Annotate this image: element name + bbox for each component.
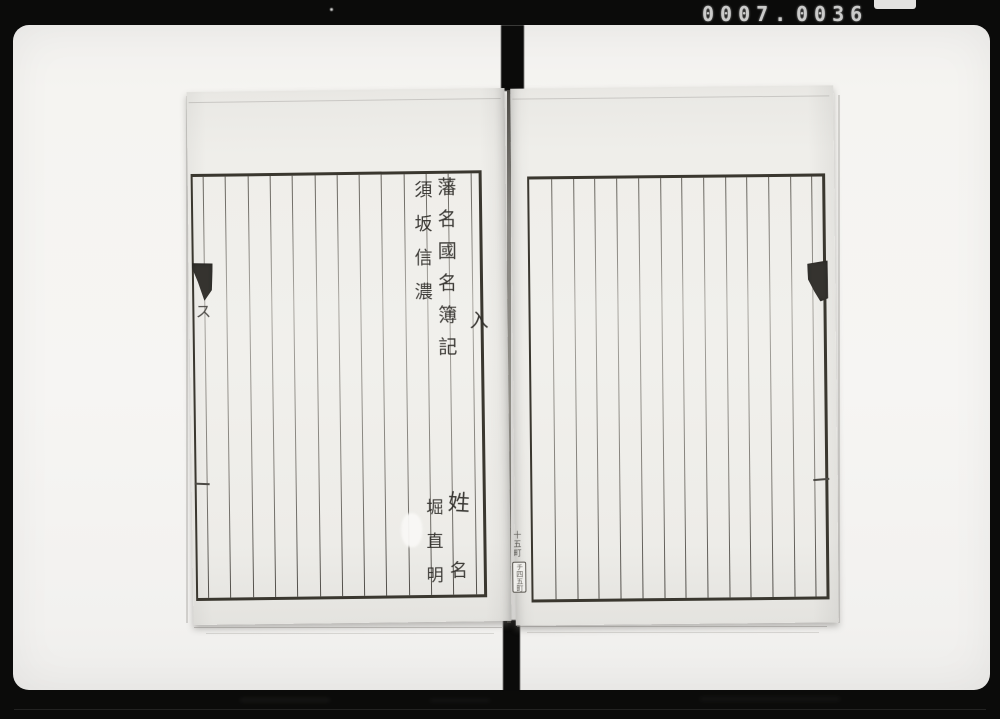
spine-label-text: チ四五町 <box>516 564 523 592</box>
under-leaf-edge <box>512 95 829 99</box>
name-label: 名 <box>448 560 466 578</box>
ruled-column-line <box>359 175 366 596</box>
ruled-column-line <box>470 173 477 594</box>
spine-note: 十五町 <box>513 531 521 558</box>
ruled-column-line <box>595 179 600 599</box>
ruled-column-line <box>203 177 210 598</box>
spine-label: チ四五町 <box>512 562 526 593</box>
ruled-column-line <box>270 176 277 597</box>
frame-counter-right: 0036 <box>796 2 868 26</box>
ruled-column-line <box>314 175 321 596</box>
ruled-column-line <box>336 175 343 596</box>
ruled-column-line <box>225 177 232 598</box>
page-stack-edge <box>527 632 819 633</box>
left-page: ス 藩名國名簿記 須坂信濃 入 姓 名 堀直明 <box>187 88 512 625</box>
ruled-column-line <box>703 178 708 598</box>
received-mark: 入 <box>467 310 486 329</box>
film-scratch <box>14 709 986 710</box>
page-stack-edge <box>517 626 827 627</box>
film-speck <box>330 8 333 11</box>
ruled-column-line <box>812 177 817 597</box>
ruled-column-line <box>616 179 621 599</box>
ruled-column-line <box>247 176 254 597</box>
ruled-column-line <box>681 178 686 598</box>
domain-province-column: 須坂信濃 <box>412 180 430 316</box>
ruled-column-line <box>638 178 643 598</box>
under-leaf-edge <box>189 98 501 103</box>
ruled-column-line <box>573 179 578 599</box>
fold-edge-mark: ス <box>193 303 209 319</box>
page-stack-edge <box>838 95 840 623</box>
ruled-column-line <box>768 177 773 597</box>
ruled-column-line <box>381 175 388 596</box>
ruled-column-line <box>292 176 299 597</box>
paper-repair-patch <box>401 513 422 547</box>
film-smudge <box>700 697 840 701</box>
person-name-column: 堀直明 <box>423 498 440 600</box>
ruled-column-line <box>746 177 751 597</box>
right-page: 十五町 チ四五町 <box>510 85 839 625</box>
page-stack-edge <box>194 627 502 628</box>
cradle-gap-bottom <box>503 620 520 691</box>
frame-counter-left: 0007. <box>702 2 792 26</box>
film-smudge <box>240 698 330 702</box>
page-stack-edge <box>206 633 494 634</box>
ruled-column-line <box>551 179 556 599</box>
film-edge-tab <box>874 0 916 9</box>
film-frame: 0007. 0036 ス 藩名國名簿記 須坂信濃 入 姓 名 堀直明 十五町 チ… <box>0 0 1000 719</box>
film-smudge <box>430 699 490 702</box>
right-page-ruled-frame <box>527 173 829 602</box>
ruled-column-line <box>660 178 665 598</box>
cradle-gap-top <box>501 25 524 91</box>
title-column: 藩名國名簿記 <box>435 177 455 369</box>
surname-label: 姓 <box>444 490 467 513</box>
ruled-column-line <box>725 177 730 597</box>
ruled-column-line <box>790 177 795 597</box>
